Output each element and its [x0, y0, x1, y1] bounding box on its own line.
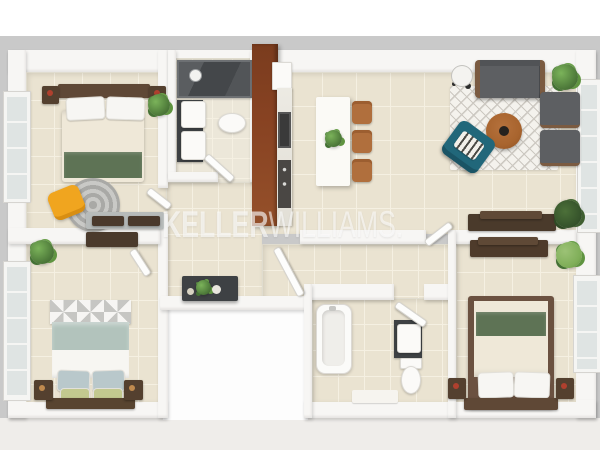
floor-plan-image: KELLERWILLIAMS.: [0, 0, 600, 450]
stove: [278, 112, 291, 148]
bathtub-faucet-icon: [329, 306, 336, 311]
oven-appliance: [278, 160, 291, 208]
bed2-zigzag-runner: [50, 300, 131, 324]
armchair-2: [540, 130, 580, 166]
watermark-keller-williams: KELLERWILLIAMS.: [162, 204, 403, 246]
plant-bedroom2: [30, 240, 54, 264]
bed3-pillow-left: [478, 371, 515, 398]
shower-head-icon: [190, 70, 201, 81]
sink-lower: [181, 131, 206, 160]
bed-bedroom1-green-throw: [64, 152, 142, 178]
pillow-bedroom1-right: [106, 96, 146, 120]
toilet-top-bathroom: [218, 113, 246, 133]
headboard-bedroom1: [58, 84, 150, 98]
bathtub-basin: [322, 310, 345, 366]
bed2-sage-throw: [52, 322, 129, 352]
bed3-pillow-right: [514, 371, 551, 398]
shower-top-bathroom: [177, 60, 252, 98]
range-hood: [272, 62, 292, 90]
window-bedroom-top-left: [4, 92, 30, 202]
plant-bedroom3: [556, 242, 582, 268]
wall-bathroom-top-west: [168, 50, 176, 176]
window-bedroom-bottom-right: [574, 276, 600, 372]
toilet-bowl: [401, 366, 421, 394]
wall-bathroom-top-south: [168, 172, 218, 182]
bed3-green-band: [476, 312, 546, 336]
floor-lamp: [452, 66, 472, 86]
bed2-headboard: [46, 398, 135, 409]
plant-living-bottom-right: [554, 200, 582, 228]
dining-chair-1: [352, 101, 372, 124]
building-notch: [163, 306, 308, 420]
lamp-bedroom1-left: [47, 90, 53, 96]
dining-plant-centerpiece: [325, 130, 342, 147]
bath-mat: [352, 390, 398, 403]
watermark-secondary: WILLIAMS.: [269, 204, 404, 245]
plant-living-top-right: [552, 64, 578, 90]
lamp-bedroom3-right: [561, 383, 567, 389]
lamp-bedroom3-left: [453, 383, 459, 389]
console-plant: [196, 280, 211, 295]
desk-drawer-left: [92, 216, 124, 226]
coffee-table-decor: [499, 126, 509, 136]
dining-chair-2: [352, 130, 372, 153]
window-bedroom-bottom-left: [4, 262, 30, 400]
lamp-bedroom2-right: [129, 385, 135, 391]
dining-chair-3: [352, 159, 372, 182]
sofa: [475, 60, 545, 98]
wall-shelf-bedroom2: [86, 232, 138, 247]
bed3-headboard: [464, 398, 558, 410]
console-decor-plate: [212, 285, 221, 294]
plant-bedroom1: [148, 94, 170, 116]
watermark-primary: KELLER: [162, 204, 269, 245]
wall-bathroom-bottom-west: [304, 284, 312, 418]
wall-bedroom1-east: [158, 50, 168, 188]
vanity-sink: [397, 324, 421, 353]
lamp-bedroom2-left: [39, 385, 45, 391]
sink-upper: [181, 101, 206, 128]
sideboard-living-top: [480, 211, 542, 219]
armchair-1: [540, 92, 580, 128]
background-bottom: [0, 418, 600, 450]
dresser-bedroom3-top: [478, 237, 538, 245]
pillow-bedroom1-left: [65, 96, 105, 121]
desk-drawer-right: [128, 216, 160, 226]
wall-bathroom-bottom-north-west: [306, 284, 394, 300]
